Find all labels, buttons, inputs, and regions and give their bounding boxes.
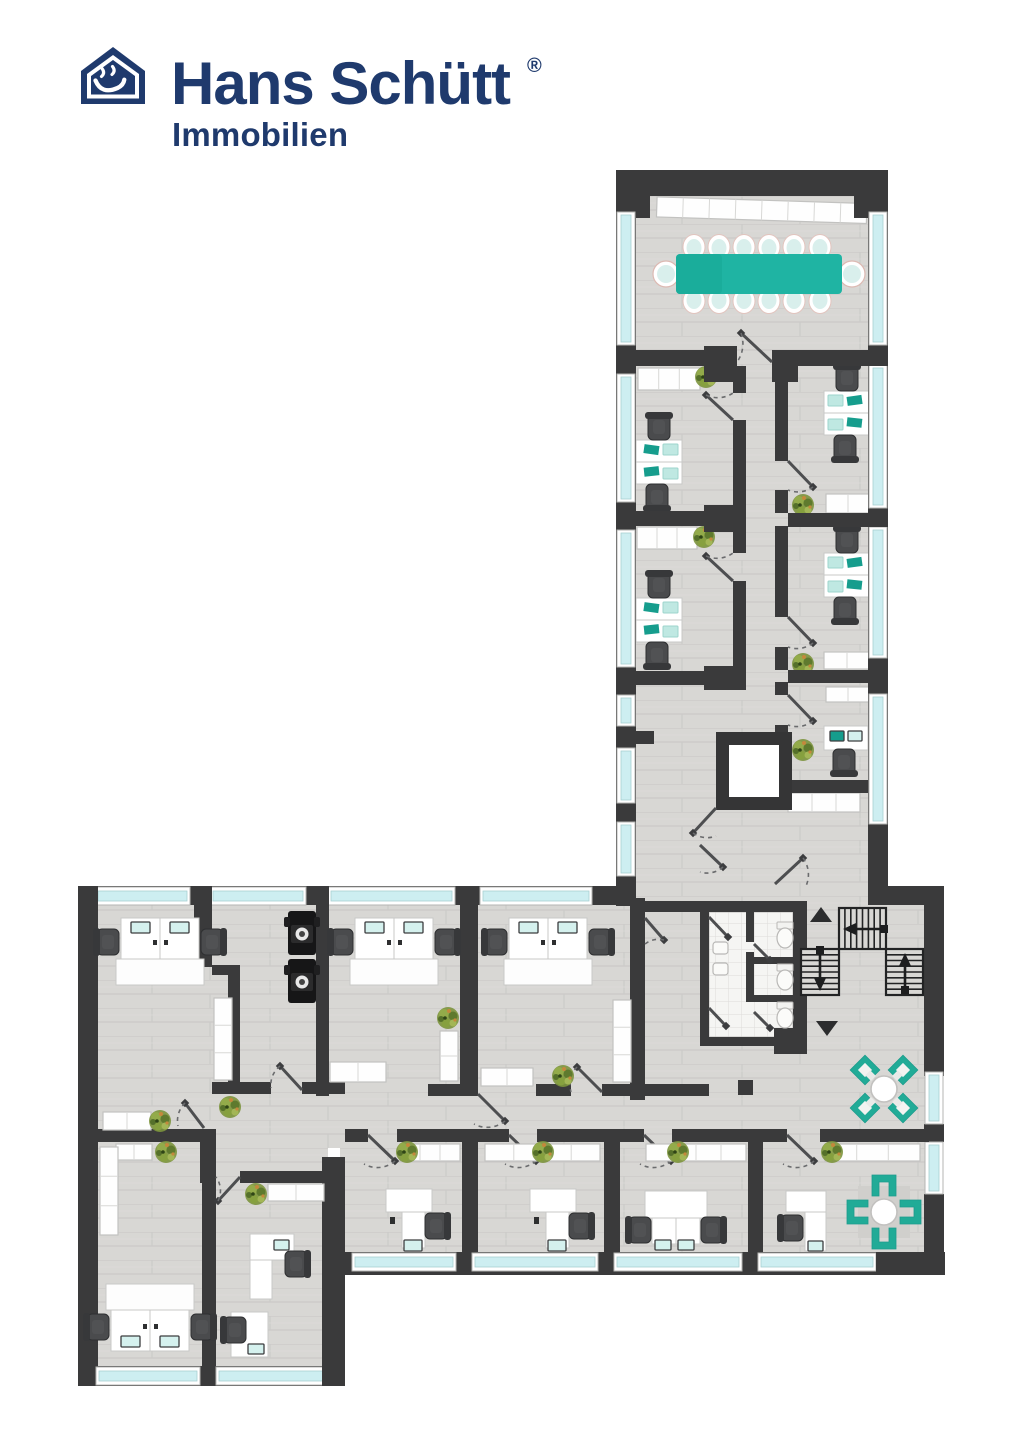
svg-text:Immobilien: Immobilien [172, 116, 348, 153]
svg-text:Hans Schütt: Hans Schütt [171, 50, 511, 117]
svg-text:®: ® [527, 55, 542, 77]
